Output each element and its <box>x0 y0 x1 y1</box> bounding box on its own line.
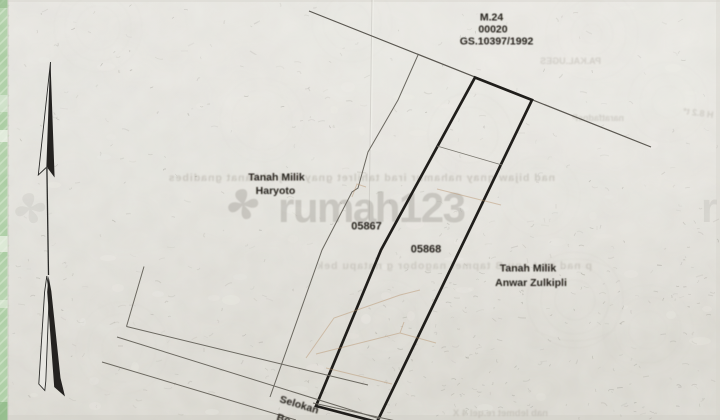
svg-text:Tanah Milik: Tanah Milik <box>500 263 557 275</box>
svg-text:naratfadneP: naratfadneP <box>572 113 624 123</box>
svg-text:Anwar Zulkipli: Anwar Zulkipli <box>495 277 567 289</box>
svg-text:00020: 00020 <box>478 24 507 36</box>
svg-text:nab lebmet re.qel 4 X: nab lebmet re.qel 4 X <box>452 408 548 419</box>
svg-text:Haryoto: Haryoto <box>256 185 296 197</box>
svg-text:GS.10397/1992: GS.10397/1992 <box>460 36 534 48</box>
svg-text:Tanah Milik: Tanah Milik <box>248 172 305 184</box>
svg-text:M.24: M.24 <box>480 12 504 24</box>
svg-text:05868: 05868 <box>411 244 442 256</box>
svg-text:r: r <box>701 184 717 231</box>
svg-text:05867: 05867 <box>351 221 382 233</box>
svg-text:PA.KAL.UGES: PA.KAL.UGES <box>540 56 601 66</box>
